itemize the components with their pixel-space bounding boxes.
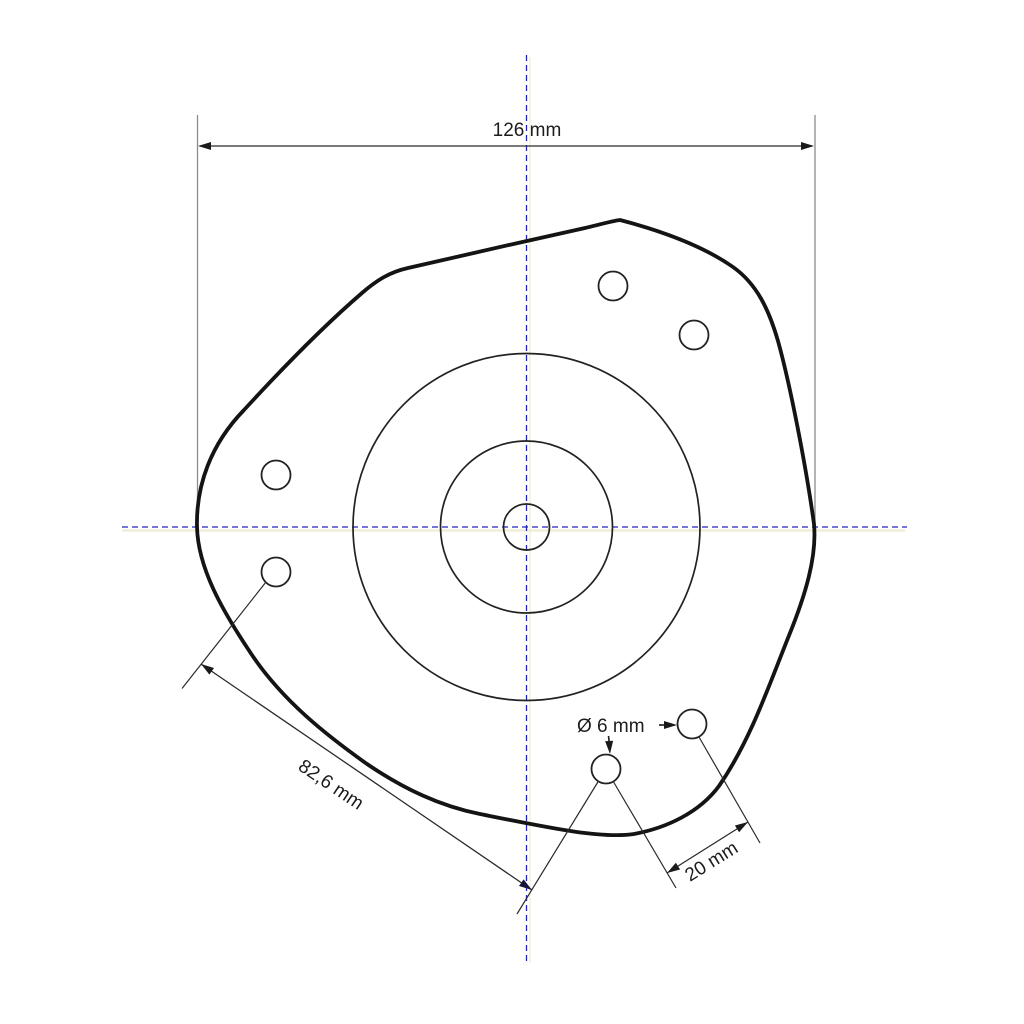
width-dimension-label: 126 mm — [493, 120, 562, 141]
diagonal-extension-line-upper — [182, 582, 266, 689]
arrowhead-bottom-right — [735, 822, 748, 832]
mounting-hole-left-upper — [262, 461, 291, 490]
technical-drawing: 126 mm 82,6 mm Ø 6 mm 20 mm — [0, 0, 1024, 1024]
mounting-hole-bottom — [592, 755, 621, 784]
arrowhead-width-left — [198, 142, 211, 150]
diagonal-dimension-line — [201, 664, 532, 890]
arrowhead-callout-right — [664, 721, 677, 729]
arrowhead-diagonal-upper — [201, 664, 214, 675]
arrowhead-width-right — [801, 142, 814, 150]
mounting-hole-top-inner — [599, 272, 628, 301]
hole-diameter-label: Ø 6 mm — [577, 716, 645, 737]
arrowhead-bottom-left — [667, 863, 680, 873]
bottom-extension-line-right — [699, 737, 760, 843]
diagonal-dimension-label: 82,6 mm — [294, 756, 367, 815]
mounting-hole-bottom-right — [678, 710, 707, 739]
arrowhead-callout-down — [605, 741, 613, 754]
mounting-hole-top-right — [680, 321, 709, 350]
drawing-canvas: 126 mm 82,6 mm Ø 6 mm 20 mm — [0, 0, 1024, 1024]
